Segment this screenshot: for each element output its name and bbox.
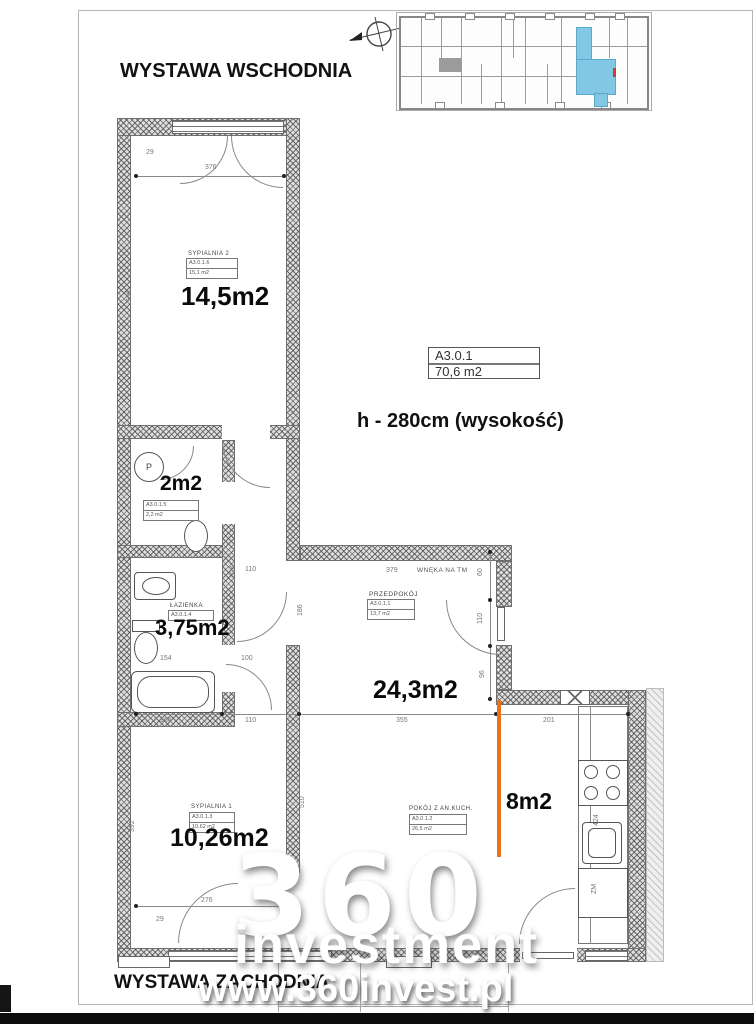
dim-dot (488, 697, 492, 701)
dim-dot (220, 712, 224, 716)
dimension-label: 166 (160, 717, 172, 725)
room-code: A3.0.1.5 (144, 501, 198, 511)
mini-wall (627, 18, 628, 104)
dimension-label: ZM (591, 884, 599, 894)
room-area: 15,1 m2 (187, 269, 237, 278)
mini-wall (525, 18, 526, 104)
mini-wall (401, 76, 577, 77)
dimension-label: 335 (230, 565, 238, 577)
room-name-hall: PRZEDPOKÓJ (369, 591, 418, 598)
room-area-wc: 2m2 (160, 472, 202, 496)
room-tag-wc: A3.0.1.5 2,2 m2 (143, 500, 199, 521)
bath-sink-bowl (142, 577, 170, 595)
burner-icon (584, 765, 598, 779)
left-edge-mark (0, 985, 11, 1012)
dimension-label: 186 (297, 604, 305, 616)
room-name-living: POKÓJ Z AN.KUCH. (409, 806, 473, 812)
room-area-living: 8m2 (506, 788, 552, 815)
unit-code: A3.0.1 (429, 348, 539, 365)
dimension-label: 201 (543, 717, 555, 725)
dim-dot (297, 712, 301, 716)
bathtub-inner (137, 676, 209, 708)
mini-balcony (465, 13, 475, 20)
floorplan-sheet: WYSTAWA WSCHODNIA WYSTAWA ZACHODNIA (0, 0, 754, 1024)
dim-line (136, 176, 285, 177)
wall-wc-bath (117, 545, 235, 558)
dimension-label: 536 (126, 290, 134, 302)
dimension-label: 276 (201, 897, 213, 905)
exposure-top-label: WYSTAWA WSCHODNIA (120, 60, 352, 83)
wc-sink (184, 520, 208, 552)
door-opening-wc (222, 482, 235, 524)
mini-wall (513, 18, 514, 58)
room-name-bath: ŁAZIENKA (170, 603, 203, 609)
room-area-bedroom2: 14,5m2 (181, 281, 269, 312)
room-code: A3.0.1.3 (190, 813, 234, 823)
orange-divider-line (497, 700, 501, 857)
dimension-label: 392 (129, 820, 137, 832)
window-bedroom2 (172, 120, 284, 134)
dim-dot (626, 712, 630, 716)
dim-line (136, 714, 628, 715)
mini-wall (481, 64, 482, 104)
room-code: A3.0.1.2 (410, 815, 466, 825)
bottom-black-bar (0, 1013, 754, 1024)
room-code: A3.0.1.6 (187, 259, 237, 269)
dim-dot (488, 644, 492, 648)
watermark-url: www.360invest.pl (198, 968, 513, 1011)
window-sill (118, 956, 170, 968)
dimension-label: 376 (205, 164, 217, 172)
wall-right (628, 690, 646, 962)
room-tag-hall: A3.0.1.1 13,7 m2 (367, 599, 415, 620)
highlighted-unit (595, 94, 607, 106)
dimension-label: 110 (245, 566, 256, 574)
dim-dot (488, 550, 492, 554)
unit-marker (613, 68, 616, 77)
watermark-investment: investment (234, 914, 539, 976)
facade-band (646, 688, 664, 962)
dim-dot (134, 712, 138, 716)
dishwasher (578, 868, 628, 918)
door-opening-bedroom2 (222, 425, 270, 439)
room-tag-bedroom2: A3.0.1.6 15,1 m2 (186, 258, 238, 279)
mini-wall (609, 18, 610, 58)
mini-wall (421, 18, 422, 104)
room-name-bedroom1: SYPIALNIA 1 (191, 804, 232, 810)
building-outline (399, 16, 649, 110)
mini-wall (401, 46, 647, 47)
building-overview (396, 12, 652, 111)
dimension-label: 154 (160, 655, 172, 663)
room-area: 2,2 m2 (144, 511, 198, 520)
dimension-label: 110 (477, 613, 485, 624)
room-area-hall: 24,3m2 (373, 676, 458, 705)
mini-wall (561, 18, 562, 104)
dimension-label: 379 (386, 567, 398, 575)
wall-column-right (286, 118, 300, 561)
mini-balcony (555, 102, 565, 109)
niche-label: WNĘKA NA TM (417, 567, 468, 574)
mini-wall (547, 64, 548, 104)
stove (578, 760, 628, 806)
mini-wall (501, 18, 502, 104)
dimension-label: 60 (477, 568, 485, 576)
mini-wall (441, 18, 442, 58)
mini-balcony (425, 13, 435, 20)
mini-stairwell (439, 58, 461, 72)
dimension-label: 96 (479, 670, 487, 678)
unit-total-area: 70,6 m2 (429, 365, 539, 379)
mini-balcony (615, 13, 625, 20)
mini-wall (461, 18, 462, 104)
burner-icon (606, 765, 620, 779)
dimension-label: 110 (245, 717, 256, 725)
burner-icon (584, 786, 598, 800)
room-name-bedroom2: SYPIALNIA 2 (188, 251, 229, 257)
dim-line (490, 552, 491, 700)
dim-dot (134, 174, 138, 178)
kitchen-sink-bowl (588, 828, 616, 858)
wall-bedroom2-wc (117, 425, 300, 439)
wall-hall-top (300, 545, 512, 561)
vent-shaft (560, 690, 590, 705)
dimension-label: 100 (241, 655, 253, 663)
mini-balcony (495, 102, 505, 109)
wall-left (117, 118, 131, 962)
dimension-label: 424 (593, 814, 601, 826)
mini-balcony (435, 102, 445, 109)
dimension-label: 510 (299, 796, 307, 808)
mini-balcony (505, 13, 515, 20)
mini-balcony (585, 13, 595, 20)
window-kitchen (585, 950, 628, 961)
room-area-bath: 3,75m2 (155, 615, 230, 641)
room-area: 13,7 m2 (368, 610, 414, 619)
dim-dot (282, 174, 286, 178)
dim-dot (488, 598, 492, 602)
dim-dot (134, 904, 138, 908)
dimension-label: 29 (146, 149, 154, 157)
burner-icon (606, 786, 620, 800)
room-code: A3.0.1.1 (368, 600, 414, 610)
height-note: h - 280cm (wysokość) (357, 410, 564, 433)
unit-info-box: A3.0.1 70,6 m2 (428, 347, 540, 379)
highlighted-unit (577, 60, 615, 94)
dimension-label: 29 (156, 916, 164, 924)
mini-balcony (545, 13, 555, 20)
dimension-label: 355 (396, 717, 408, 725)
